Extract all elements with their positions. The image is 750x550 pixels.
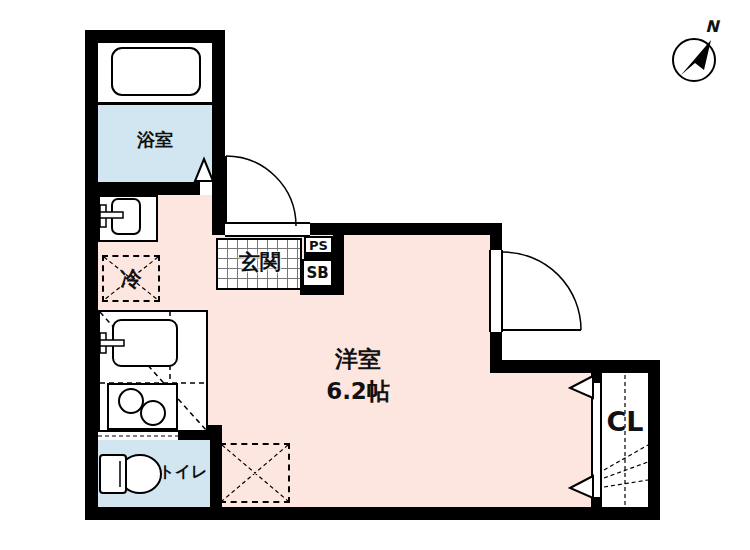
wall-bottom bbox=[85, 507, 660, 520]
wall-closet-door-top bbox=[591, 373, 602, 381]
wall-bath-top bbox=[85, 30, 225, 43]
entrance-label: 玄関 bbox=[218, 248, 302, 276]
wall-sb-bottom bbox=[300, 287, 344, 295]
bathroom-label: 浴室 bbox=[98, 128, 212, 152]
entrance-door-arc-icon bbox=[226, 156, 296, 226]
pipe-space-label: PS bbox=[305, 237, 332, 253]
compass-north-label: N bbox=[700, 16, 724, 36]
wall-right-outer bbox=[648, 360, 660, 520]
room-size-label: 6.2帖 bbox=[298, 376, 418, 406]
closet-door-panel bbox=[591, 381, 602, 499]
washbasin-box bbox=[98, 195, 158, 242]
refrigerator-label: 冷 bbox=[102, 258, 160, 299]
kitchen-counter bbox=[98, 310, 208, 432]
bathtub-room-floor bbox=[98, 43, 212, 105]
bath-tub-divider-line bbox=[98, 102, 212, 105]
closet-label: CL bbox=[602, 405, 648, 437]
closet-floor bbox=[602, 373, 648, 507]
toilet-top-opening bbox=[98, 432, 178, 440]
wall-bath-bottom bbox=[85, 182, 200, 195]
room-door-opening bbox=[489, 250, 503, 332]
wall-bath-right bbox=[212, 30, 225, 235]
washer-space bbox=[220, 443, 290, 503]
wall-mid-horizontal bbox=[490, 360, 660, 373]
wall-closet-door-bottom bbox=[591, 499, 602, 507]
wall-top bbox=[310, 223, 502, 235]
room-door-arc-icon bbox=[503, 252, 581, 330]
main-room-floor-right bbox=[490, 373, 591, 507]
wall-ps-right bbox=[333, 235, 344, 295]
room-name-label: 洋室 bbox=[298, 344, 418, 374]
toilet-label: トイレ bbox=[156, 461, 210, 483]
floor-plan: 浴室 玄関 PS SB 冷 洋室 6.2帖 トイレ CL N bbox=[0, 0, 750, 550]
shoe-box-label: SB bbox=[303, 261, 332, 285]
entrance-door-opening bbox=[225, 222, 310, 237]
wall-left bbox=[85, 30, 98, 520]
compass-icon bbox=[673, 39, 715, 81]
wall-right-upper bbox=[490, 223, 502, 252]
